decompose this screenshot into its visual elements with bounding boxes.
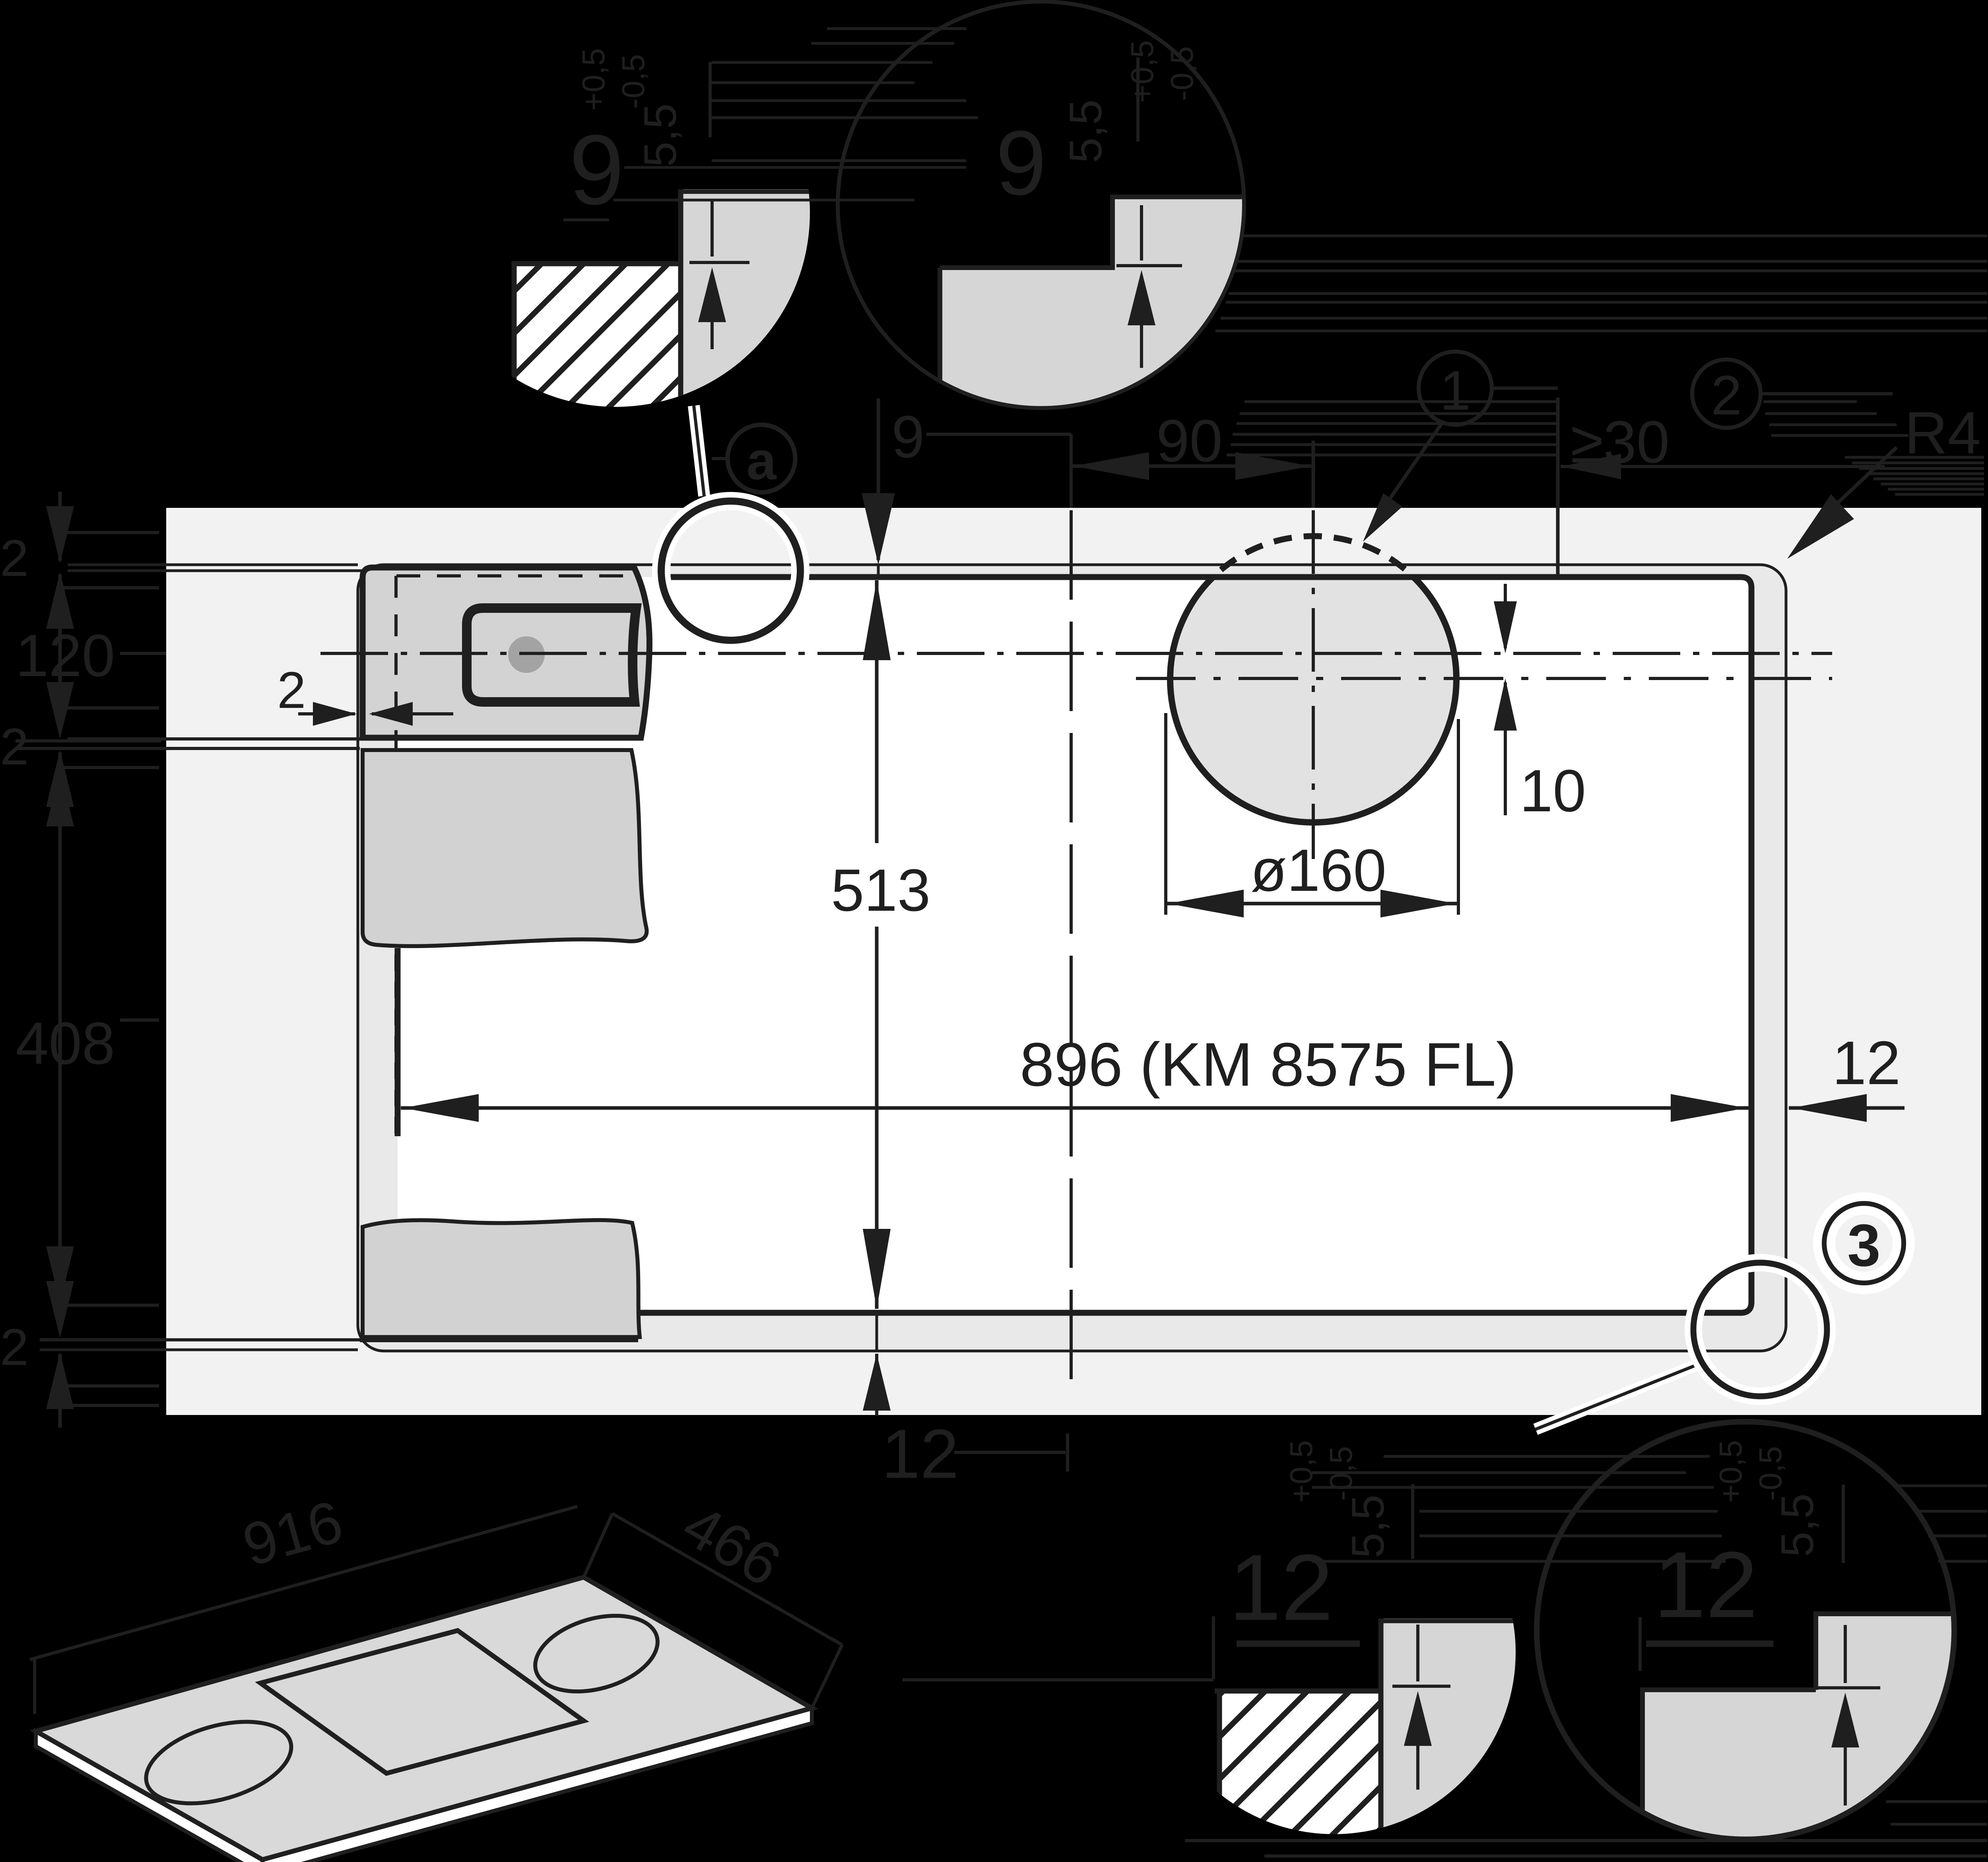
svg-text:513: 513 — [831, 857, 930, 923]
svg-text:9: 9 — [891, 403, 924, 470]
svg-text:R4: R4 — [1905, 399, 1981, 466]
svg-text:-0,5: -0,5 — [1164, 46, 1200, 101]
svg-text:12: 12 — [1832, 1028, 1901, 1097]
svg-text:5,5: 5,5 — [1772, 1493, 1823, 1557]
svg-text:a: a — [746, 431, 777, 491]
svg-text:12: 12 — [1229, 1535, 1334, 1640]
svg-text:-0,5: -0,5 — [615, 54, 651, 109]
svg-text:12: 12 — [881, 1415, 959, 1493]
svg-text:896 (KM 8575 FL): 896 (KM 8575 FL) — [1020, 1030, 1516, 1099]
svg-text:9: 9 — [996, 112, 1046, 214]
svg-text:10: 10 — [1520, 757, 1586, 824]
svg-text:1: 1 — [1440, 359, 1471, 422]
svg-text:12: 12 — [1654, 1532, 1758, 1637]
svg-text:2: 2 — [1711, 364, 1742, 426]
svg-text:2: 2 — [0, 529, 29, 587]
svg-text:2: 2 — [277, 661, 306, 719]
svg-text:5,5: 5,5 — [1060, 99, 1111, 163]
svg-text:5,5: 5,5 — [635, 103, 686, 167]
svg-text:408: 408 — [16, 1010, 115, 1077]
svg-text:120: 120 — [16, 622, 115, 689]
svg-text:2: 2 — [0, 1318, 29, 1376]
svg-text:-0,5: -0,5 — [1753, 1446, 1788, 1501]
svg-text:+0,5: +0,5 — [1713, 1440, 1748, 1503]
svg-text:2: 2 — [0, 717, 29, 776]
svg-text:90: 90 — [1156, 407, 1223, 474]
svg-text:3: 3 — [1847, 1212, 1880, 1279]
svg-text:ø160: ø160 — [1250, 837, 1386, 904]
svg-text:5,5: 5,5 — [1343, 1495, 1394, 1558]
svg-text:+0,5: +0,5 — [1124, 40, 1160, 103]
svg-text:9: 9 — [569, 114, 624, 225]
svg-text:+0,5: +0,5 — [576, 48, 611, 111]
